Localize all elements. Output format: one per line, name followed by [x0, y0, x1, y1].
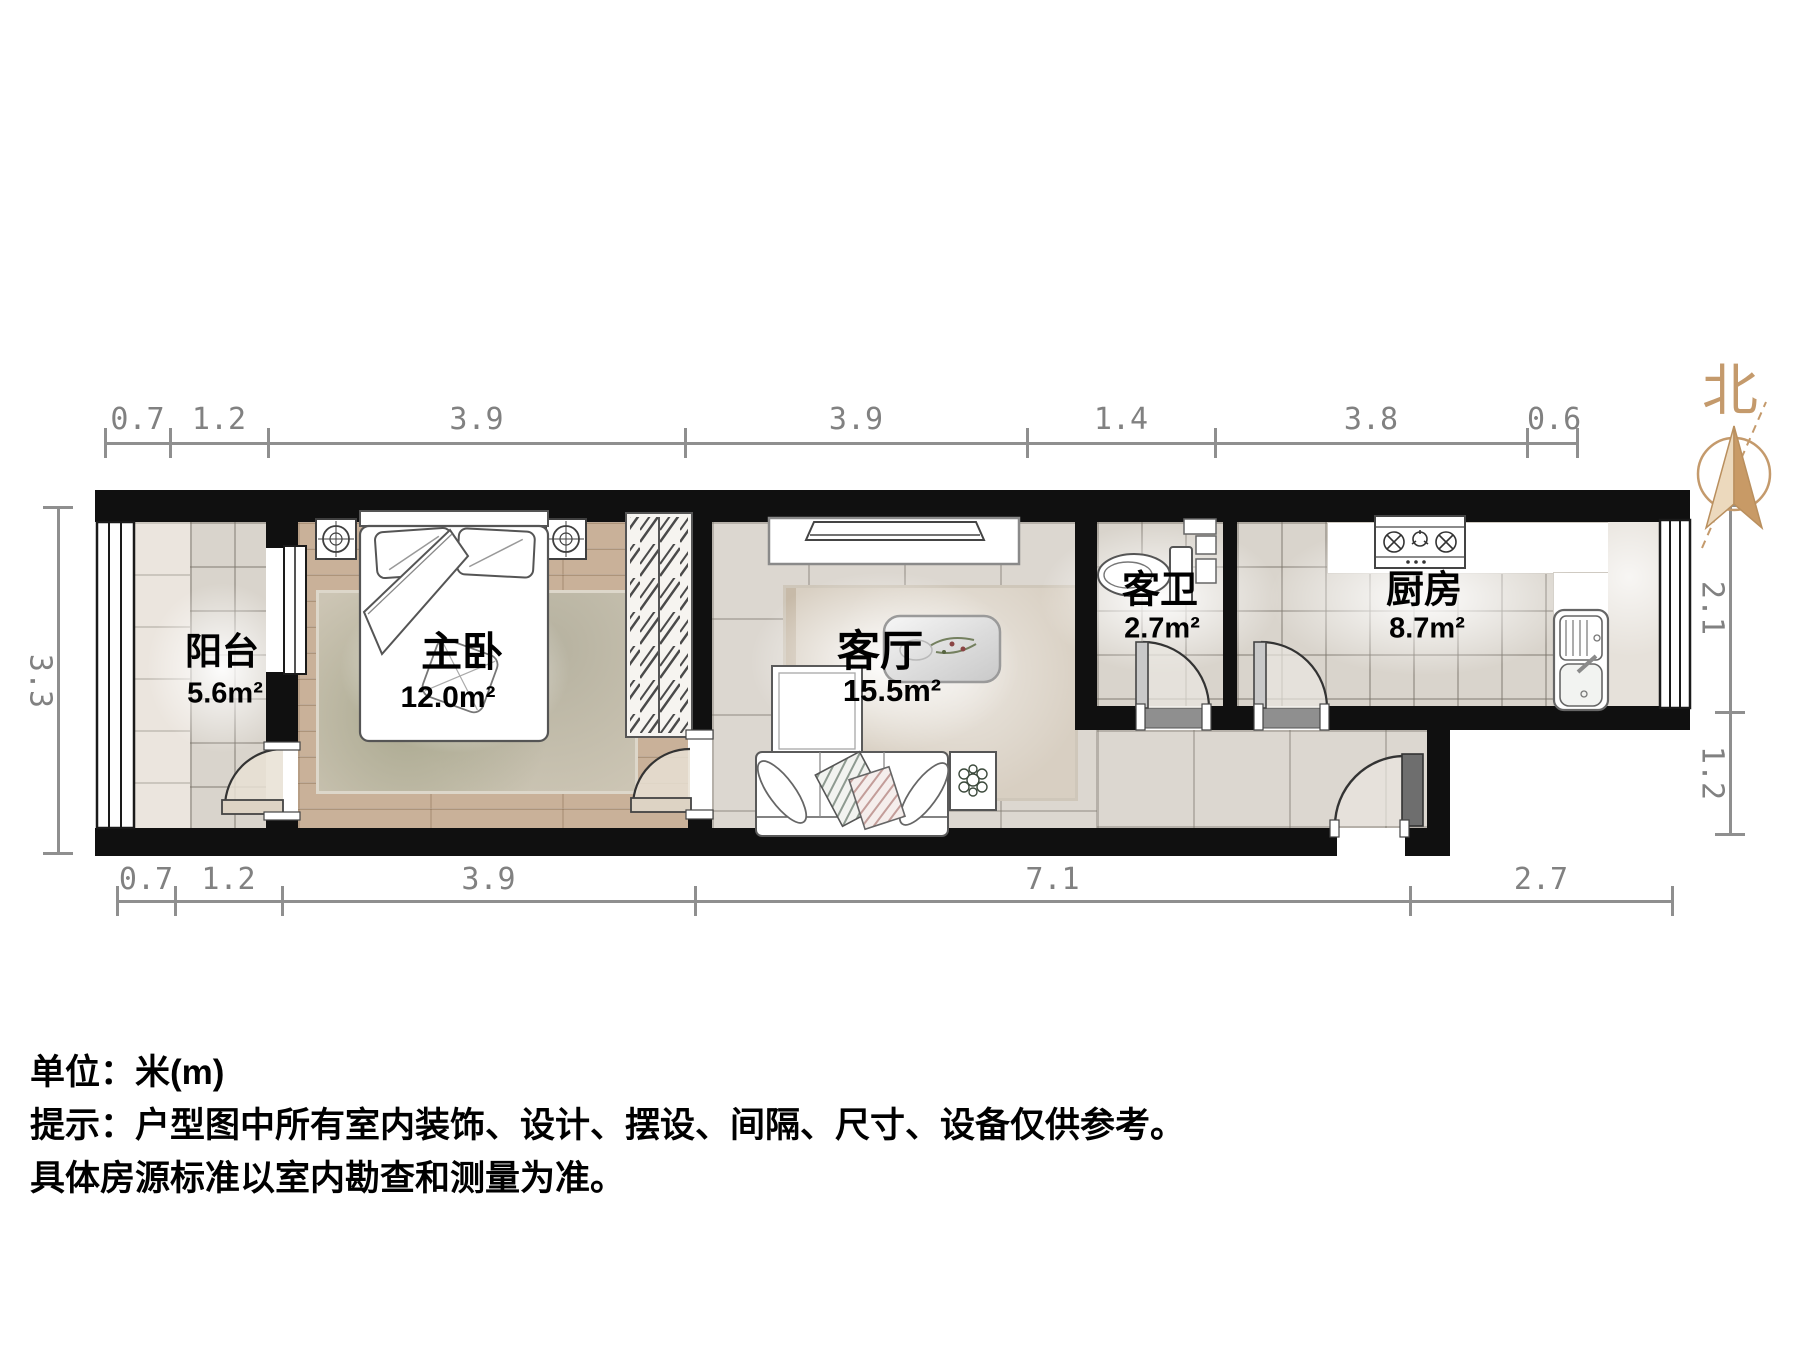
- tv-icon: [806, 522, 984, 540]
- bathroom-label: 客卫: [1122, 559, 1198, 614]
- bedroom-label: 主卧: [421, 618, 503, 678]
- balcony-door: [222, 742, 300, 820]
- bedroom-balcony-window: [284, 546, 306, 674]
- living-room-label: 客厅: [837, 617, 923, 679]
- bathroom-door: [1136, 642, 1211, 730]
- balcony-area-label: 5.6m²: [187, 678, 263, 711]
- tv-console: [769, 518, 1019, 564]
- north-label: 北: [1702, 346, 1758, 427]
- kitchen-sink-icon: [1554, 610, 1608, 710]
- wardrobe: [626, 513, 692, 737]
- living-room-area-label: 15.5m²: [843, 673, 941, 709]
- entry-door: [1330, 754, 1423, 837]
- side-table-plant: [950, 752, 996, 810]
- nightstand-lamp-left-icon: [316, 519, 356, 559]
- balcony-label: 阳台: [185, 621, 259, 675]
- kitchen-label: 厨房: [1386, 559, 1462, 614]
- balcony-window-left: [97, 522, 134, 828]
- floor-plan-canvas: 阳台 5.6m² 主卧 12.0m² 客厅 15.5m² 客卫 2.7m² 厨房…: [0, 0, 1797, 1347]
- kitchen-door: [1254, 642, 1329, 730]
- bathroom-area-label: 2.7m²: [1124, 613, 1200, 646]
- kitchen-area-label: 8.7m²: [1389, 613, 1465, 646]
- nightstand-lamp-right-icon: [546, 519, 586, 559]
- kitchen-window-right: [1660, 520, 1690, 708]
- bedroom-area-label: 12.0m²: [400, 681, 495, 715]
- bedroom-door: [631, 730, 713, 819]
